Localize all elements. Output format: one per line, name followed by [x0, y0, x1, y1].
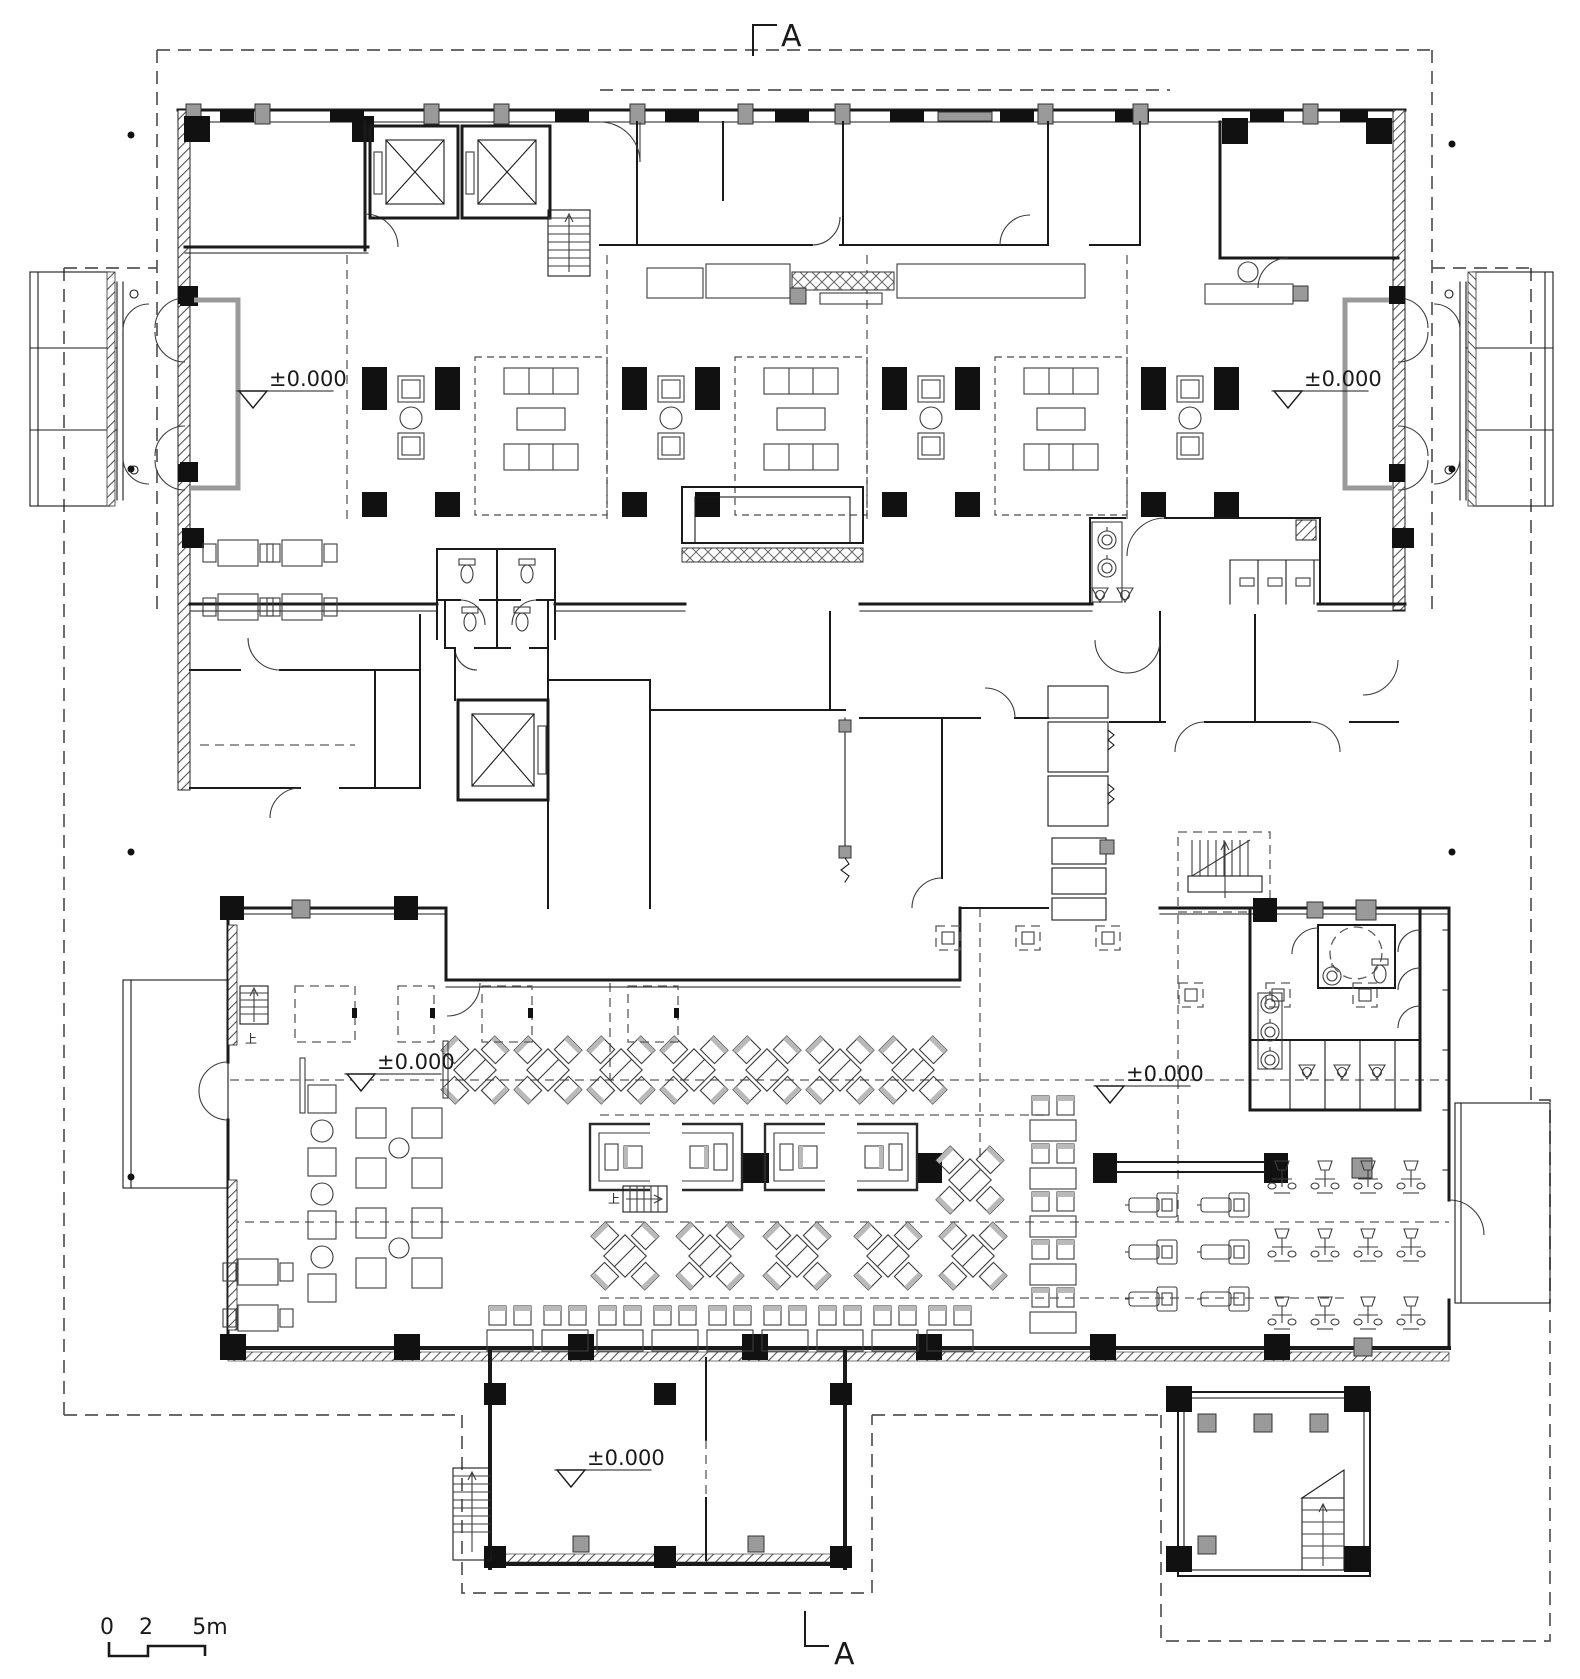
lower-block-walls: [123, 908, 1550, 1361]
lobby-sofa-group: [995, 357, 1127, 515]
middle-elevator: [458, 700, 548, 800]
stair-up-label: 上: [245, 1032, 257, 1046]
middle-band-walls: [190, 600, 1398, 908]
upper-toilets-right: [1090, 518, 1320, 604]
level-marker-dining-right: ±0.000: [1094, 1062, 1204, 1103]
lobby-sofa-group: [735, 357, 867, 515]
section-label-top: A: [781, 19, 802, 54]
scale-bar: 0 2 5m: [100, 1615, 228, 1656]
lobby-furniture: [203, 262, 1308, 620]
lobby-seating-group: [622, 367, 720, 517]
top-rooms: [185, 122, 1398, 288]
level-marker-lobby-left: ±0.000: [237, 367, 347, 408]
lobby-seating-group: [362, 367, 460, 517]
stair-top: [548, 210, 590, 276]
level-value: ±0.000: [269, 367, 347, 391]
lower-block-columns: [220, 896, 1376, 1360]
section-marker-bottom: A: [805, 1612, 855, 1672]
lounge-table: [267, 540, 337, 566]
scale-tick-0: 0: [100, 1615, 114, 1640]
washrooms-lower: [1250, 908, 1420, 1110]
dining-furniture: [223, 926, 1377, 1351]
lounge-table: [203, 594, 273, 620]
lounge-table: [267, 594, 337, 620]
floor-plan-sheet: 上 上 A A ±0.000 ±0.000 ±0.000 ±0.000 ±: [0, 0, 1580, 1679]
level-marker-dining-left: ±0.000: [345, 1050, 455, 1091]
section-label-bottom: A: [834, 1637, 855, 1672]
level-marker-lobby-right: ±0.000: [1272, 367, 1382, 408]
lobby-sofa-group: [475, 357, 607, 515]
reception-desk: [647, 268, 703, 298]
stair-west: 上: [240, 986, 268, 1046]
gym-equipment: [1125, 1161, 1425, 1329]
level-value: ±0.000: [587, 1446, 665, 1470]
lounge-table: [203, 540, 273, 566]
level-value: ±0.000: [377, 1050, 455, 1074]
elevator-core-top: [370, 126, 590, 276]
level-value: ±0.000: [1126, 1062, 1204, 1086]
floor-plan-canvas: 上 上 A A ±0.000 ±0.000 ±0.000 ±0.000 ±: [0, 0, 1580, 1679]
stair-up-label: 上: [608, 1192, 620, 1206]
lobby-seating-group: [1141, 367, 1239, 517]
scale-tick-2: 2: [139, 1615, 153, 1640]
level-value: ±0.000: [1304, 367, 1382, 391]
level-marker-entrance: ±0.000: [555, 1446, 665, 1487]
scale-tick-5m: 5m: [192, 1615, 227, 1640]
lobby-seating-group: [882, 367, 980, 517]
service-shafts: [1048, 686, 1114, 920]
annex-block: [1166, 1386, 1370, 1576]
left-entrance-wing: [30, 272, 238, 506]
